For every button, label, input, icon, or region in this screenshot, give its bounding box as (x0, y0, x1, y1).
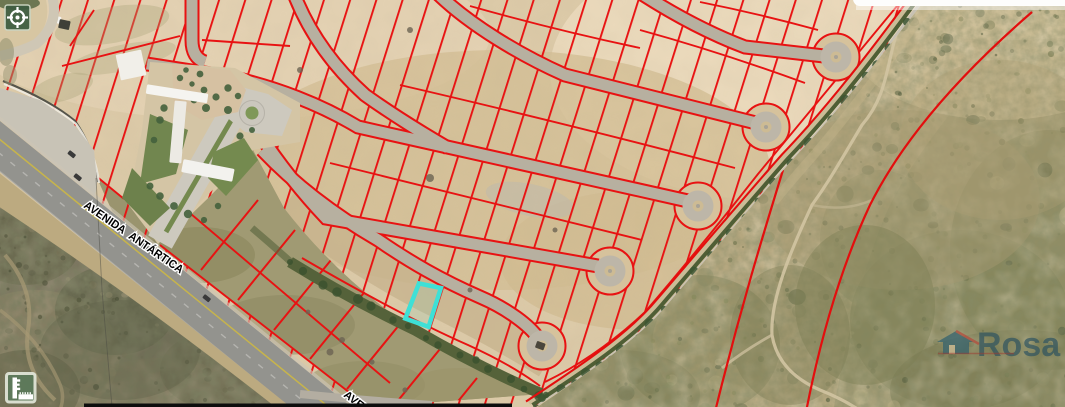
svg-text:Rosa: Rosa (977, 326, 1061, 364)
